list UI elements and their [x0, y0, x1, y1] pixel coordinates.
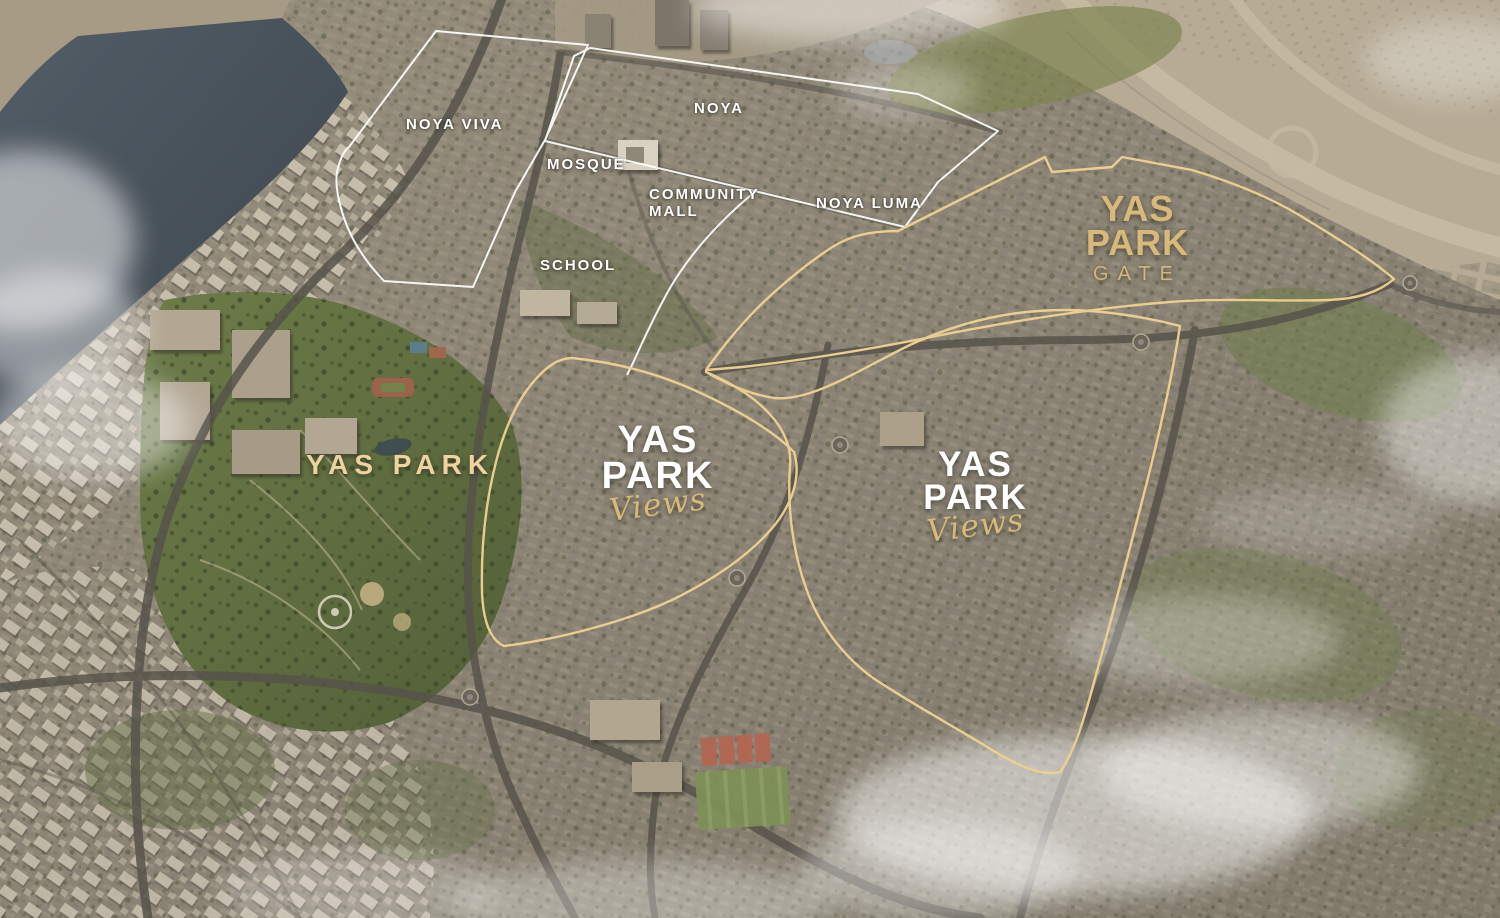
labels-layer: NOYA VIVA NOYA MOSQUE COMMUNITY MALL NOY… [0, 0, 1500, 918]
logo-gate-line2: PARK [1075, 226, 1200, 260]
logo-yas-park-views-west: YAS PARK Views [574, 422, 742, 521]
masterplan-map: NOYA VIVA NOYA MOSQUE COMMUNITY MALL NOY… [0, 0, 1500, 918]
label-community-mall: COMMUNITY MALL [649, 186, 759, 221]
logo-gate-line1: YAS [1075, 192, 1200, 226]
label-noya-viva: NOYA VIVA [406, 116, 503, 133]
logo-gate-line3: GATE [1075, 265, 1200, 284]
label-school: SCHOOL [540, 257, 616, 274]
label-mosque: MOSQUE [547, 156, 626, 173]
label-noya: NOYA [694, 100, 744, 117]
logo-views-west-line1: YAS [574, 422, 742, 458]
label-yas-park: YAS PARK [306, 449, 494, 481]
logo-yas-park-views-east: YAS PARK Views [908, 448, 1043, 541]
logo-yas-park-gate: YAS PARK GATE [1075, 192, 1200, 284]
logo-views-east-line1: YAS [908, 448, 1043, 481]
label-noya-luma: NOYA LUMA [816, 195, 923, 212]
